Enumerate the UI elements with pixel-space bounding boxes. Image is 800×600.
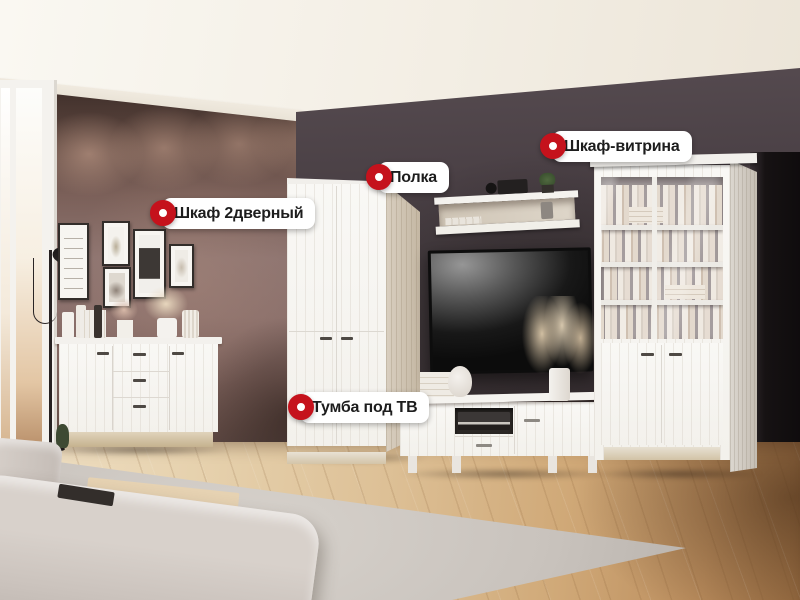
wardrobe-handle [341,337,353,340]
cabinet-plinth [604,447,720,460]
hotspot-marker-icon[interactable] [288,394,314,420]
tv-stand-image [400,402,602,456]
wall-shelf-image [434,182,581,243]
hotspot-label[interactable]: Тумба под ТВ [300,392,429,423]
window-pane [1,88,10,462]
cabinet-handle [669,353,682,356]
sideboard-top [55,337,222,344]
tv-stand-leg [548,456,557,473]
sideboard-drawer-gap [113,397,170,398]
decor-candle [62,312,74,338]
decor-vase [448,366,472,397]
frame-art [64,229,83,294]
hotspot-label[interactable]: Шкаф-витрина [552,131,692,162]
hotspot-marker-icon[interactable] [150,200,176,226]
sideboard-handle [133,405,146,408]
wardrobe-door-gap [289,331,384,332]
hotspot-label[interactable]: Шкаф 2дверный [162,198,315,229]
sideboard-handle [133,379,146,382]
picture-frame [102,221,130,266]
tv-stand-leg [408,456,417,473]
furniture-set-hotspot-view: Шкаф 2дверный Полка Шкаф-витрина Тумба п… [0,0,800,600]
sideboard-plinth [64,432,213,447]
wardrobe-handle [320,337,332,340]
cabinet-lower-doors [601,343,723,445]
sideboard-image [59,344,218,432]
floor-lamp-pole [49,250,52,450]
wardrobe-plinth [287,452,386,464]
decor-speaker [540,202,553,220]
sideboard-handle [97,352,109,355]
decor-vase [182,310,199,338]
picture-frame [169,244,194,288]
tv-stand-leg [452,456,461,473]
sideboard-panel-gap [112,346,113,430]
decor-plant-pot [542,185,554,194]
frame-art [108,227,124,260]
sideboard-handle [172,352,184,355]
tv-stand-shadow [398,468,612,480]
cabinet-handle [641,353,654,356]
frame-art [139,235,160,293]
sideboard-drawer-gap [113,371,170,372]
decor-camera-lens [485,183,497,195]
hotspot-marker-icon[interactable] [366,164,392,190]
decor-camera [497,179,528,195]
decor-dried-flowers [110,298,138,322]
cabinet-side-panel [730,160,757,472]
decor-books [80,310,106,338]
floor-lamp-cord [33,258,57,324]
frame-art [175,250,188,282]
decor-vase [549,368,570,401]
display-cabinet-image [594,165,730,460]
cabinet-glass-reflection [601,177,723,339]
cabinet-door-gap [661,345,662,443]
dark-corner-shadow [750,152,800,474]
hotspot-marker-icon[interactable] [540,133,566,159]
decor-vase [117,320,133,338]
tv-stand-door-gap [514,406,515,454]
picture-frame [58,223,89,300]
decor-bottle [94,305,102,338]
sideboard-panel-gap [169,346,170,430]
decor-vase [157,318,177,338]
tv-stand-niche [455,408,513,434]
sideboard-handle [133,353,146,356]
decor-stereo-receiver [458,412,510,430]
tv-stand-handle [524,419,540,422]
tv-stand-handle [476,444,492,447]
